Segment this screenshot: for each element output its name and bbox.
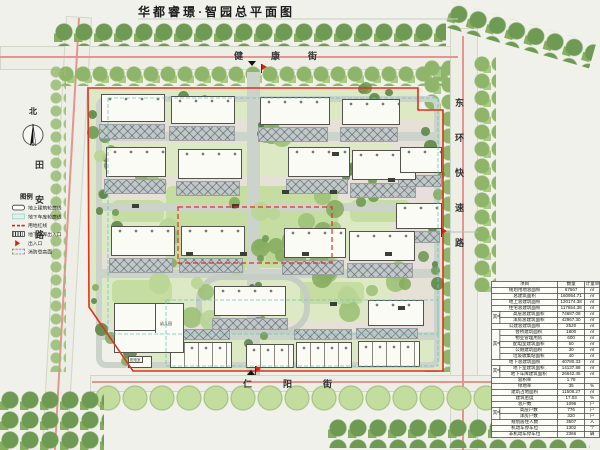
building-footprint <box>260 97 330 125</box>
building-footprint <box>106 147 166 177</box>
building-footprint <box>368 300 424 326</box>
indicators-table-body: 规划用地总面积67567㎡总建筑面积160954.71㎡地上总建筑面积12017… <box>492 287 600 437</box>
red-line-icon <box>12 224 25 226</box>
building-number-chip <box>232 204 239 208</box>
tree <box>356 197 366 207</box>
table-group-cell: 其中 <box>492 365 500 377</box>
villa-footprint <box>296 342 352 368</box>
villa-footprint <box>246 344 294 368</box>
tree <box>431 266 440 275</box>
tree <box>421 127 430 136</box>
building-number-chip <box>330 190 337 194</box>
fire-lane-hatch <box>258 127 328 142</box>
tree <box>112 209 119 216</box>
fire-lane-hatch <box>104 179 166 194</box>
villa-footprint <box>358 341 420 367</box>
table-group-cell: 其中 <box>492 311 500 323</box>
legend-item: 地上建筑轮廓线 <box>12 203 86 212</box>
site-plan-sheet: 华都睿璟·智园总平面图 健康街 仁阳街 田安路 东环快速路 北 图例 地上建筑轮… <box>0 0 600 450</box>
entrance-flag-icon-east <box>442 228 447 234</box>
garage-outline-icon <box>12 214 25 220</box>
building-number-chip <box>186 252 193 256</box>
table-group-cell: 其中 <box>492 407 500 419</box>
entrance-flag-icon <box>15 240 20 246</box>
tree <box>191 277 203 289</box>
kindergarten-building <box>114 303 184 353</box>
fire-lane-hatch <box>347 263 413 278</box>
building-footprint <box>178 149 242 179</box>
building-footprint <box>111 226 175 256</box>
fire-lane-hatch <box>176 181 240 196</box>
tree <box>339 301 360 322</box>
indicators-table: 项目 数量 计量单位 规划用地总面积67567㎡总建筑面积160954.71㎡地… <box>491 281 600 438</box>
tree <box>338 286 356 304</box>
legend: 图例 地上建筑轮廓线地下车库轮廓线用地红线地下车库出入口出入口消防登高面 <box>12 192 86 256</box>
table-row: 非机动车停车位2366辆 <box>492 431 600 437</box>
building-number-chip <box>132 204 139 208</box>
tree <box>366 285 377 296</box>
entrance-flag-icon-south <box>256 366 261 372</box>
table-unit-cell: 辆 <box>585 431 600 437</box>
building-footprint <box>288 147 350 177</box>
tree <box>91 298 97 304</box>
legend-items: 地上建筑轮廓线地下车库轮廓线用地红线地下车库出入口出入口消防登高面 <box>12 203 86 256</box>
legend-item: 地下车库出入口 <box>12 230 86 239</box>
tree <box>149 272 170 293</box>
building-number-chip <box>240 252 247 256</box>
legend-item: 消防登高面 <box>12 247 86 256</box>
fire-lane-hatch <box>340 127 398 142</box>
tree <box>399 278 411 290</box>
legend-item-label: 出入口 <box>28 239 42 246</box>
legend-item-label: 用地红线 <box>28 222 47 229</box>
fire-lane-hatch <box>169 126 235 141</box>
fire-lane-hatch <box>282 260 344 275</box>
tree <box>260 332 268 340</box>
building-footprint <box>171 96 235 124</box>
kindergarten-label: 幼儿园 <box>160 322 172 326</box>
legend-item: 用地红线 <box>12 221 86 230</box>
fire-lane-hatch <box>294 329 352 340</box>
building-number-chip <box>302 252 309 256</box>
legend-item-label: 地上建筑轮廓线 <box>28 204 62 211</box>
building-number-chip <box>282 190 289 194</box>
fire-lane-hatch <box>356 328 418 339</box>
building-number-chip <box>332 152 339 156</box>
fire-lane-hatch <box>99 124 165 139</box>
garage-entrance-icon <box>12 231 25 237</box>
north-compass: 北 <box>18 108 48 156</box>
compass-north-label: 北 <box>18 108 48 116</box>
building-footprint <box>101 94 165 122</box>
fire-lane-hatch <box>109 258 173 273</box>
building-footprint <box>342 99 400 125</box>
tree <box>96 207 103 214</box>
building-number-chip <box>398 306 405 310</box>
entrance-flag-icon-north <box>262 64 267 70</box>
table-header-unit: 计量单位 <box>585 281 600 287</box>
fire-lane-hatch <box>286 179 348 194</box>
table-item-cell: 非机动车停车位 <box>492 431 558 437</box>
street-label-south: 仁阳街 <box>243 377 363 390</box>
legend-item-label: 地下车库出入口 <box>28 230 62 237</box>
legend-item-label: 地下车库轮廓线 <box>28 213 62 220</box>
building-footprint <box>284 228 346 258</box>
power-room-label: 配电室 <box>130 359 141 363</box>
building-number-chip <box>330 302 337 306</box>
building-number-chip <box>385 252 392 256</box>
page-title: 华都睿璟·智园总平面图 <box>138 3 295 20</box>
fire-lane-hatch <box>179 258 243 273</box>
table-qty-cell: 160954.71 <box>558 293 585 299</box>
building-number-chip <box>388 178 395 182</box>
building-footprint <box>214 286 286 316</box>
legend-item-label: 消防登高面 <box>28 248 52 255</box>
street-label-east: 东环快速路 <box>453 98 466 273</box>
building-footprint <box>396 203 442 229</box>
building-footprint <box>400 147 442 173</box>
building-outline-icon <box>12 205 25 211</box>
legend-title: 图例 <box>20 192 86 201</box>
table-qty-cell: 120174.38 <box>558 299 585 305</box>
compass-icon <box>18 116 48 152</box>
table-qty-cell: 117654.38 <box>558 305 585 311</box>
building-footprint <box>349 231 415 261</box>
south-entrance-arrow-icon <box>247 370 255 375</box>
street-label-north: 健康街 <box>234 49 345 62</box>
legend-item: 地下车库轮廓线 <box>12 212 86 221</box>
fire-surface-icon <box>12 249 25 255</box>
table-group-cell: 其中 <box>492 329 500 359</box>
legend-item: 出入口 <box>12 238 86 247</box>
table-qty-cell: 2366 <box>558 431 585 437</box>
